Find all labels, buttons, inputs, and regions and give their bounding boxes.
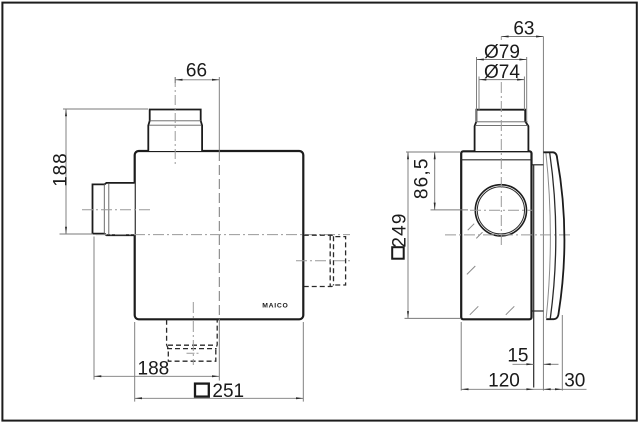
svg-text:86,5: 86,5 bbox=[411, 157, 432, 199]
svg-text:Ø74: Ø74 bbox=[484, 62, 520, 83]
svg-text:188: 188 bbox=[138, 359, 170, 380]
svg-text:249: 249 bbox=[389, 212, 410, 247]
svg-text:66: 66 bbox=[186, 61, 207, 82]
svg-text:188: 188 bbox=[50, 152, 71, 186]
svg-text:251: 251 bbox=[212, 381, 244, 402]
svg-text:63: 63 bbox=[513, 18, 534, 39]
svg-text:30: 30 bbox=[564, 371, 585, 392]
svg-text:Ø79: Ø79 bbox=[484, 42, 520, 63]
svg-text:MAICO: MAICO bbox=[262, 303, 288, 310]
svg-text:120: 120 bbox=[488, 371, 520, 392]
svg-text:15: 15 bbox=[507, 346, 528, 367]
